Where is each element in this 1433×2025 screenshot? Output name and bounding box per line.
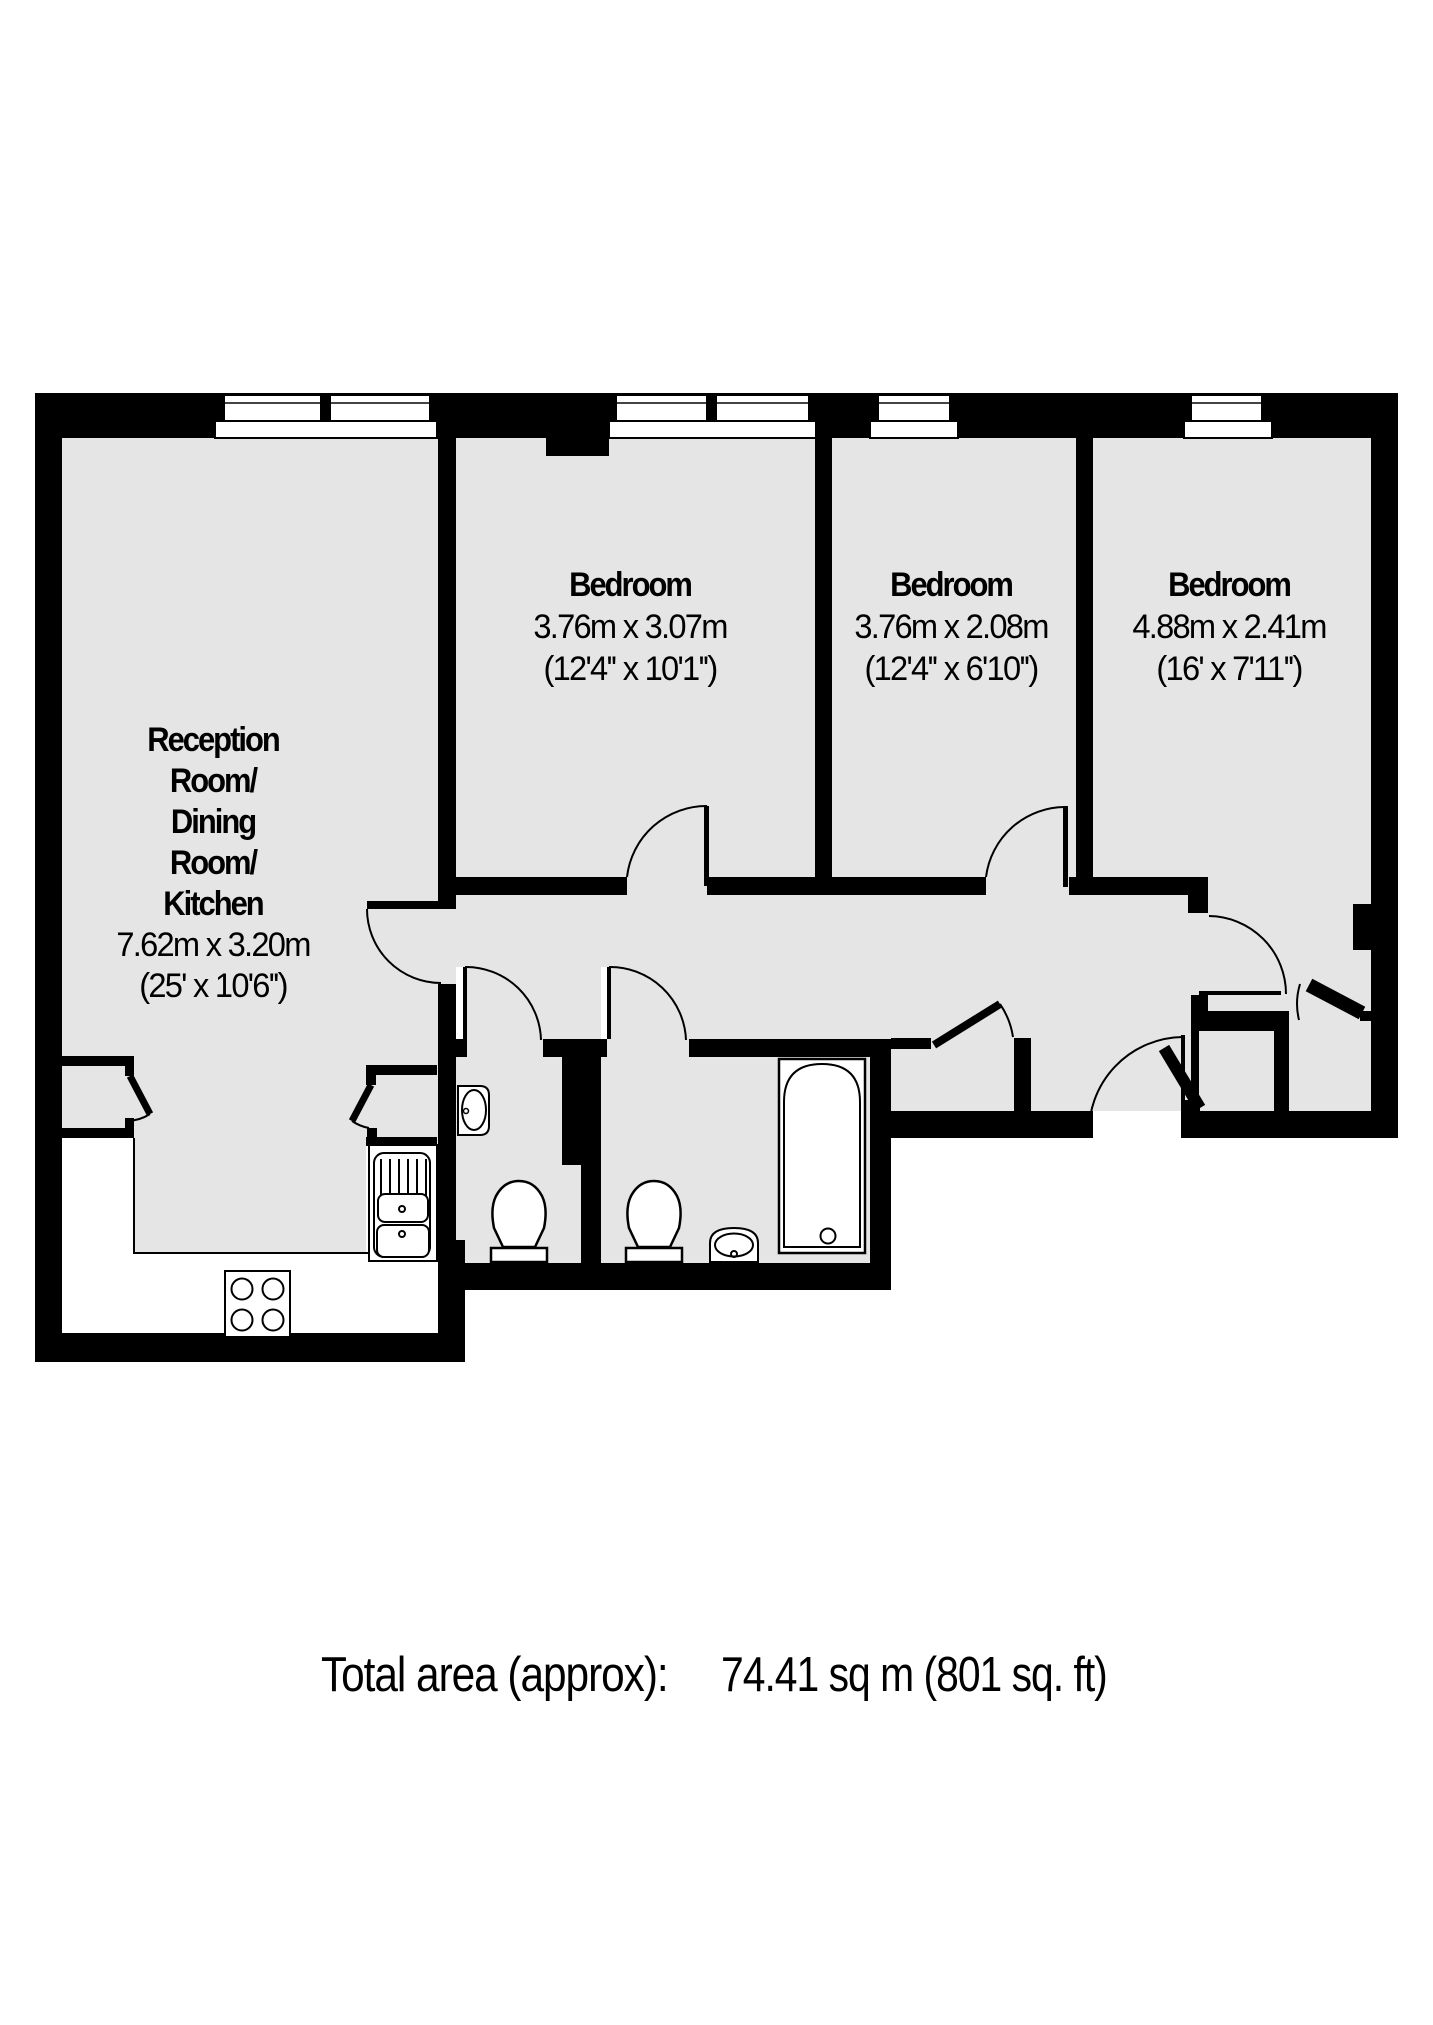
svg-text:Bedroom: Bedroom bbox=[890, 566, 1012, 604]
svg-text:(12'4'' x 6'10''): (12'4'' x 6'10'') bbox=[864, 650, 1038, 688]
svg-text:(25' x 10'6''): (25' x 10'6'') bbox=[139, 967, 287, 1005]
svg-text:3.76m x 2.08m: 3.76m x 2.08m bbox=[854, 608, 1047, 646]
svg-text:3.76m x 3.07m: 3.76m x 3.07m bbox=[533, 608, 726, 646]
svg-text:Reception: Reception bbox=[147, 721, 279, 759]
svg-text:Room/: Room/ bbox=[170, 844, 258, 882]
svg-text:(16' x 7'11''): (16' x 7'11'') bbox=[1156, 650, 1302, 688]
svg-text:7.62m x 3.20m: 7.62m x 3.20m bbox=[116, 926, 309, 964]
svg-text:4.88m x 2.41m: 4.88m x 2.41m bbox=[1132, 608, 1325, 646]
svg-text:(12'4'' x 10'1''): (12'4'' x 10'1'') bbox=[543, 650, 717, 688]
svg-text:Total area (approx):: Total area (approx): bbox=[321, 1647, 668, 1702]
svg-text:Room/: Room/ bbox=[170, 762, 258, 800]
svg-text:Bedroom: Bedroom bbox=[1168, 566, 1290, 604]
svg-text:Kitchen: Kitchen bbox=[163, 885, 263, 923]
svg-text:74.41 sq m (801 sq. ft): 74.41 sq m (801 sq. ft) bbox=[721, 1646, 1107, 1701]
svg-text:Dining: Dining bbox=[171, 803, 255, 841]
svg-text:Bedroom: Bedroom bbox=[569, 566, 691, 604]
